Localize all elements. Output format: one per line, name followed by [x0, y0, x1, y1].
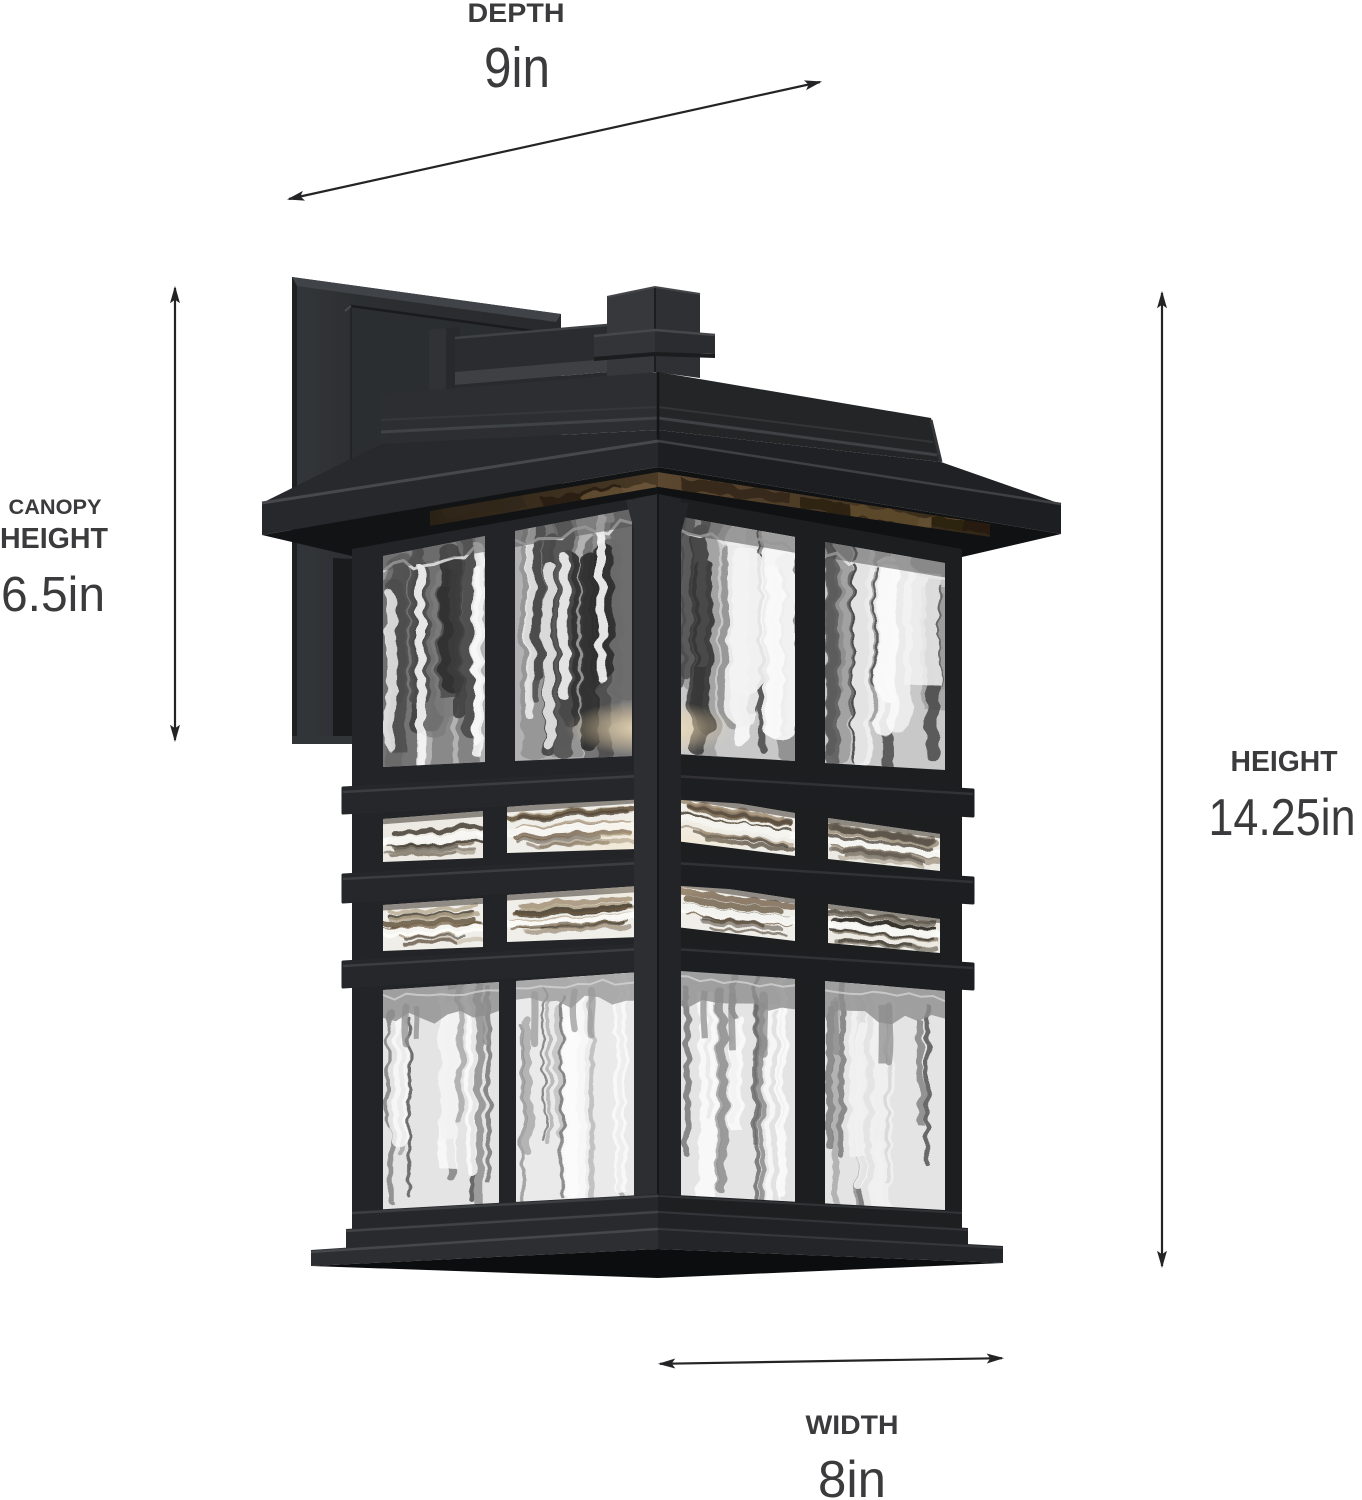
svg-text:WIDTH: WIDTH — [806, 1410, 899, 1440]
svg-text:HEIGHT: HEIGHT — [1231, 746, 1338, 778]
svg-text:14.25in: 14.25in — [1209, 789, 1356, 847]
svg-text:HEIGHT: HEIGHT — [0, 523, 108, 555]
svg-text:8in: 8in — [818, 1451, 886, 1500]
svg-text:CANOPY: CANOPY — [9, 496, 102, 519]
svg-text:9in: 9in — [484, 36, 550, 100]
svg-text:6.5in: 6.5in — [1, 568, 105, 622]
svg-text:DEPTH: DEPTH — [468, 0, 565, 28]
